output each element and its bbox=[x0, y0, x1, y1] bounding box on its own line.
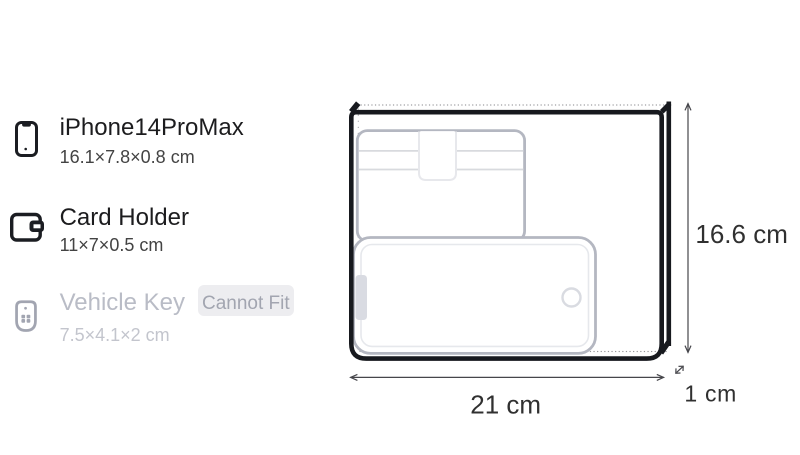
svg-text:16.6 cm: 16.6 cm bbox=[695, 219, 788, 249]
svg-text:1 cm: 1 cm bbox=[684, 381, 737, 407]
svg-text:21 cm: 21 cm bbox=[470, 390, 541, 420]
